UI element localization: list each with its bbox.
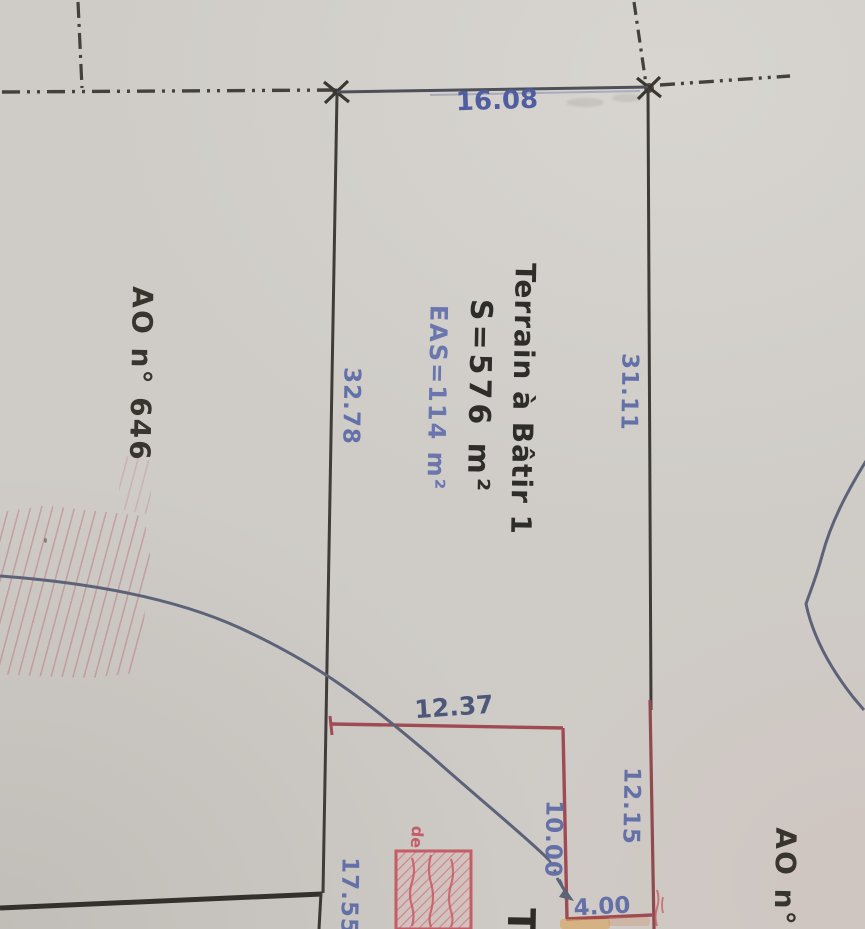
cadastral-dash-line-top-left — [2, 90, 336, 92]
contour-curve-left — [0, 576, 568, 896]
cadastral-dash-line-vertical-left — [78, 2, 82, 88]
stamp-text-fragment: de — [407, 825, 428, 849]
measurement-red-right-inner: 10.00 — [539, 800, 566, 878]
parcel-boundary-bottom — [0, 893, 322, 929]
parcel-2-title-partial: T — [499, 908, 543, 929]
measurement-red-bottom: 4.00 — [573, 893, 631, 922]
parcel-surface: S=576 m² — [460, 299, 498, 496]
parcel-title: Terrain à Bâtir 1 — [504, 263, 542, 536]
parcel-eas: EAS=114 m² — [421, 305, 452, 492]
cadastral-plan-photo: Terrain à Bâtir 1 S=576 m² EAS=114 m² AO… — [0, 0, 865, 929]
parcel-boundary-right-red-section — [650, 700, 654, 929]
cadastral-dash-line-top-right — [660, 76, 790, 85]
parcel-boundary-left — [323, 94, 337, 893]
stamp-fragment-marks — [656, 890, 664, 926]
cadastral-dash-line-vertical-right — [634, 2, 646, 84]
measurement-right-boundary: 31.11 — [615, 353, 642, 431]
measurement-red-top: 12.37 — [414, 690, 495, 724]
measurement-left-boundary: 32.78 — [337, 367, 364, 445]
adjacent-parcel-label-left: AO n° 646 — [123, 286, 159, 462]
parcel-boundary-right — [648, 88, 651, 710]
contour-curve-right — [806, 461, 865, 710]
measurement-top-boundary: 16.08 — [455, 85, 538, 118]
measurement-bottom-left-boundary: 17.55 — [335, 857, 362, 929]
measurement-red-right-outer: 12.15 — [617, 767, 644, 845]
official-stamp — [396, 851, 471, 929]
adjacent-parcel-label-bottom-right: AO n° — [768, 827, 803, 927]
